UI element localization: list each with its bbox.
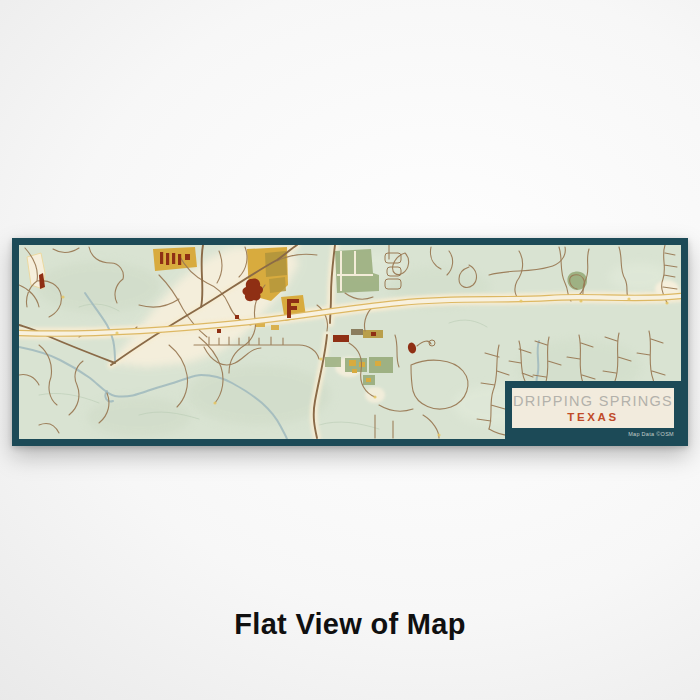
- city-name: DRIPPING SPRINGS: [513, 393, 673, 409]
- map-title-card: DRIPPING SPRINGS TEXAS Map Data ©OSM: [505, 381, 681, 439]
- map-attribution: Map Data ©OSM: [628, 431, 674, 437]
- map-print: DRIPPING SPRINGS TEXAS Map Data ©OSM: [12, 238, 688, 446]
- state-name: TEXAS: [567, 411, 618, 423]
- product-image-background: DRIPPING SPRINGS TEXAS Map Data ©OSM Fla…: [0, 0, 700, 700]
- map-title-card-face: DRIPPING SPRINGS TEXAS: [512, 388, 674, 428]
- map-canvas: DRIPPING SPRINGS TEXAS Map Data ©OSM: [19, 245, 681, 439]
- caption: Flat View of Map: [0, 608, 700, 641]
